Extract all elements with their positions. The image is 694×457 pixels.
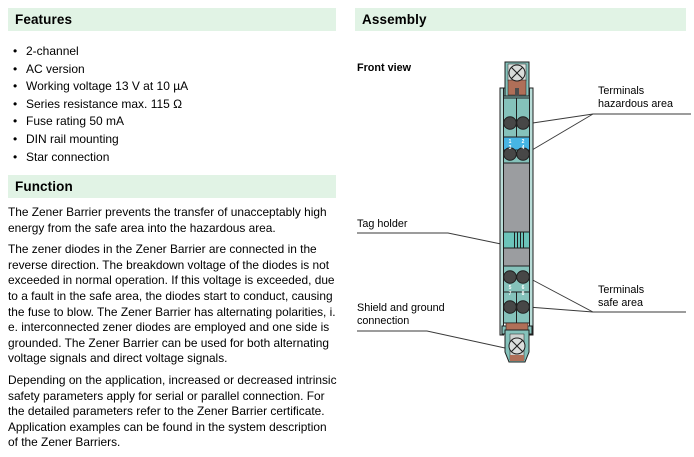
ground-tab-top — [505, 62, 529, 96]
front-view-label: Front view — [357, 62, 411, 75]
feature-item: 2-channel — [8, 43, 336, 61]
left-column: Features 2-channel AC version Working vo… — [8, 0, 338, 447]
function-paragraph: Depending on the application, increased … — [8, 373, 339, 451]
terminal-block-safe: 5 7 6 8 — [504, 266, 530, 323]
function-text: The Zener Barrier prevents the transfer … — [8, 205, 339, 457]
shield-ground-label: Shield and ground connection — [357, 302, 445, 328]
terminal-screw — [504, 117, 517, 130]
function-section-header: Function — [8, 175, 336, 198]
terminals-safe-label: Terminals safe area — [598, 284, 644, 310]
function-title: Function — [15, 179, 73, 194]
shield-ground-line2: connection — [357, 315, 445, 328]
housing-lower — [504, 248, 530, 266]
ground-tab-bottom — [502, 323, 532, 362]
features-title: Features — [15, 12, 72, 27]
housing-upper — [504, 163, 530, 232]
tag-holder-label: Tag holder — [357, 218, 407, 231]
terminals-hazardous-line2: hazardous area — [598, 98, 673, 111]
feature-item: Working voltage 13 V at 10 µA — [8, 78, 336, 96]
right-column: Assembly 1 3 2 — [355, 0, 694, 447]
terminal-number: 8 — [522, 291, 525, 297]
terminal-number: 4 — [522, 145, 525, 151]
terminals-safe-line2: safe area — [598, 297, 644, 310]
shield-ground-line1: Shield and ground — [357, 302, 445, 315]
terminal-screw — [517, 117, 530, 130]
feature-item: DIN rail mounting — [8, 131, 336, 149]
feature-item: Series resistance max. 115 Ω — [8, 96, 336, 114]
features-list: 2-channel AC version Working voltage 13 … — [8, 43, 336, 166]
function-paragraph: The zener diodes in the Zener Barrier ar… — [8, 242, 339, 367]
terminal-screw — [504, 271, 517, 284]
terminal-screw — [517, 301, 530, 314]
feature-item: Star connection — [8, 149, 336, 167]
din-rail-left — [500, 88, 504, 335]
terminal-screw — [517, 271, 530, 284]
terminals-hazardous-line1: Terminals — [598, 85, 673, 98]
feature-item: Fuse rating 50 mA — [8, 113, 336, 131]
terminal-block-hazardous: 1 3 2 4 — [504, 96, 530, 163]
terminal-screw — [504, 301, 517, 314]
feature-item: AC version — [8, 61, 336, 79]
terminal-number: 7 — [509, 291, 512, 297]
terminals-safe-line1: Terminals — [598, 284, 644, 297]
terminal-number: 3 — [509, 145, 512, 151]
din-rail-right — [530, 88, 534, 335]
terminals-hazardous-label: Terminals hazardous area — [598, 85, 673, 111]
tag-holder-strip — [504, 232, 530, 248]
features-section-header: Features — [8, 8, 336, 31]
function-paragraph: The Zener Barrier prevents the transfer … — [8, 205, 339, 236]
